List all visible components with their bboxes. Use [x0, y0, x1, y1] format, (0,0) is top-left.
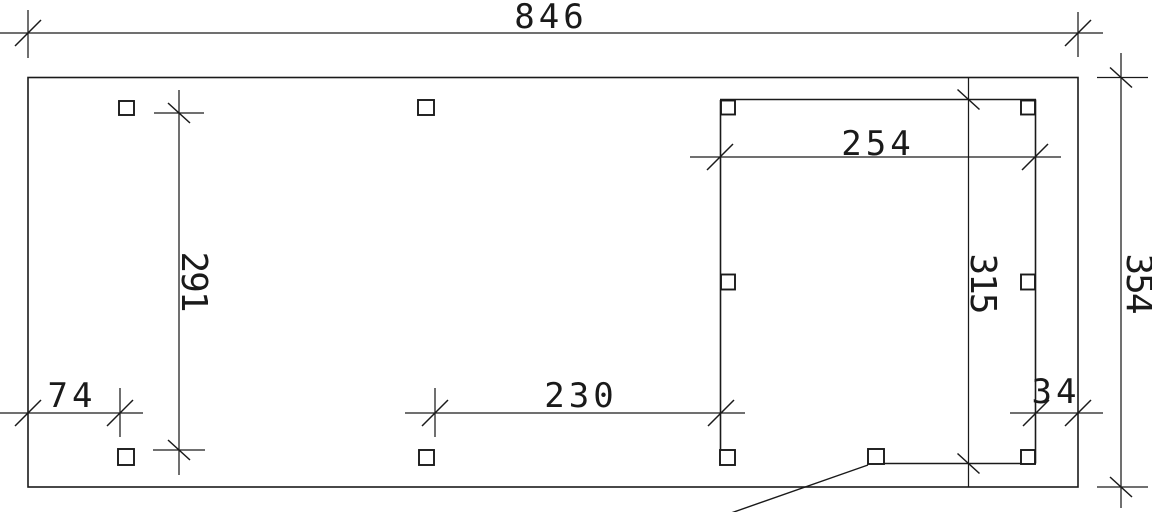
dimension-label-291: 291	[173, 251, 214, 310]
dimension-315: 315	[958, 77, 1004, 487]
dimension-label-315: 315	[962, 253, 1003, 312]
post-square	[419, 450, 434, 465]
post-square	[1021, 450, 1035, 464]
dimension-74: 74	[0, 376, 143, 437]
dimension-354: 354	[1097, 53, 1152, 508]
dimension-254: 254	[690, 124, 1061, 170]
post-square	[720, 450, 735, 465]
dimension-label-34: 34	[1032, 372, 1081, 412]
post-square	[118, 449, 134, 465]
dimension-291: 291	[153, 90, 214, 475]
carport-floor-plan: 8463542913157423025434	[0, 0, 1152, 512]
post-square	[119, 101, 134, 115]
dimension-230: 230	[405, 376, 745, 437]
technical-drawing-canvas: 8463542913157423025434	[0, 0, 1152, 512]
dimension-label-74: 74	[48, 376, 97, 416]
dimension-label-354: 354	[1118, 253, 1152, 312]
post-square	[418, 100, 434, 115]
dimension-label-846: 846	[514, 0, 587, 37]
post-square	[1021, 275, 1035, 290]
dimension-34: 34	[1010, 372, 1103, 426]
post-square	[1021, 101, 1035, 115]
dimension-846: 846	[0, 0, 1103, 58]
dimension-label-254: 254	[841, 124, 914, 164]
leader-line	[731, 465, 868, 512]
dimension-label-230: 230	[544, 376, 617, 416]
post-square	[721, 101, 735, 115]
post-square	[721, 275, 735, 290]
post-square	[868, 449, 884, 464]
